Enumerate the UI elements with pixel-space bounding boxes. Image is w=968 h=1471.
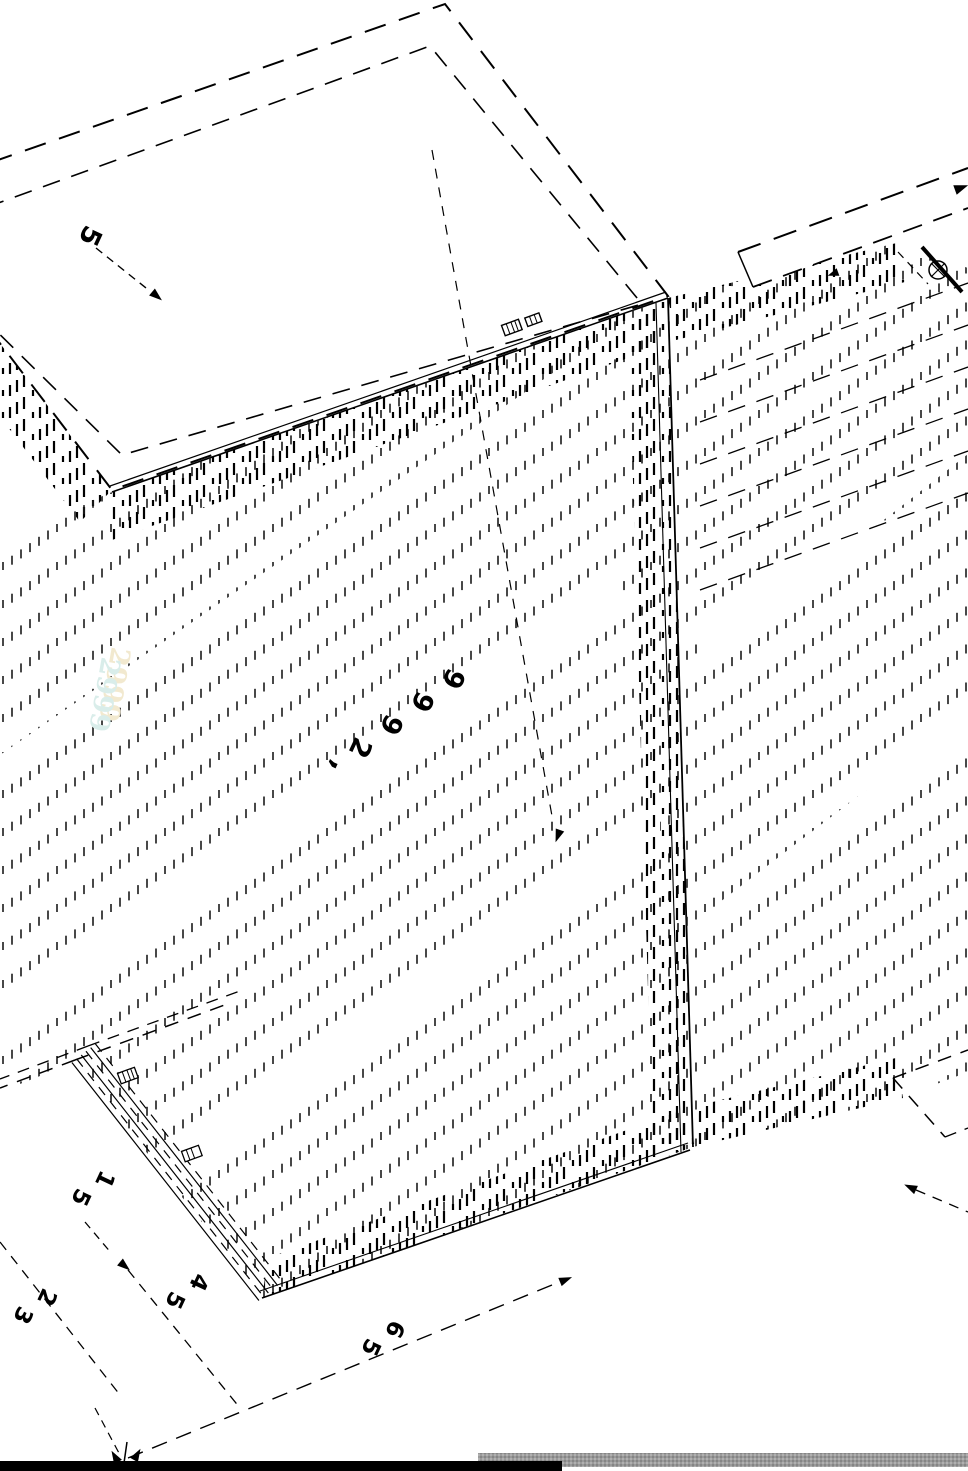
dim-b-digit-1: 5 (159, 1287, 189, 1313)
right-panel-field (668, 243, 968, 1147)
bottom-right-corner (893, 1050, 968, 1212)
dim-c-digit-1: 5 (355, 1334, 385, 1360)
page-edge-bar (0, 1461, 562, 1471)
dim-c-digit-2: 6 (379, 1316, 409, 1342)
drawing-page: 5 2999 2999 , 2 9 9 9 (0, 0, 968, 1471)
thickness-label: 5 (72, 221, 108, 251)
drawer-dim-arrow-icon (117, 1259, 133, 1274)
drawer-dim-digit-1: 5 (65, 1184, 95, 1210)
thickness-dimension: 5 (72, 221, 165, 304)
corner-arrow-icon (902, 1180, 918, 1194)
dim-a-digit-1: 3 (7, 1302, 37, 1328)
dim-b-digit-2: 4 (183, 1269, 213, 1295)
cad-drawing-canvas: 5 2999 2999 , 2 9 9 9 (0, 0, 968, 1471)
leader-arrow-icon (149, 289, 165, 304)
drawer-dim-digit-2: 1 (89, 1166, 119, 1192)
edge-fitting-symbols (501, 313, 541, 336)
dim-endpoint-arrow-right-icon (130, 1446, 144, 1462)
dim-c-arrow-icon (558, 1273, 573, 1286)
